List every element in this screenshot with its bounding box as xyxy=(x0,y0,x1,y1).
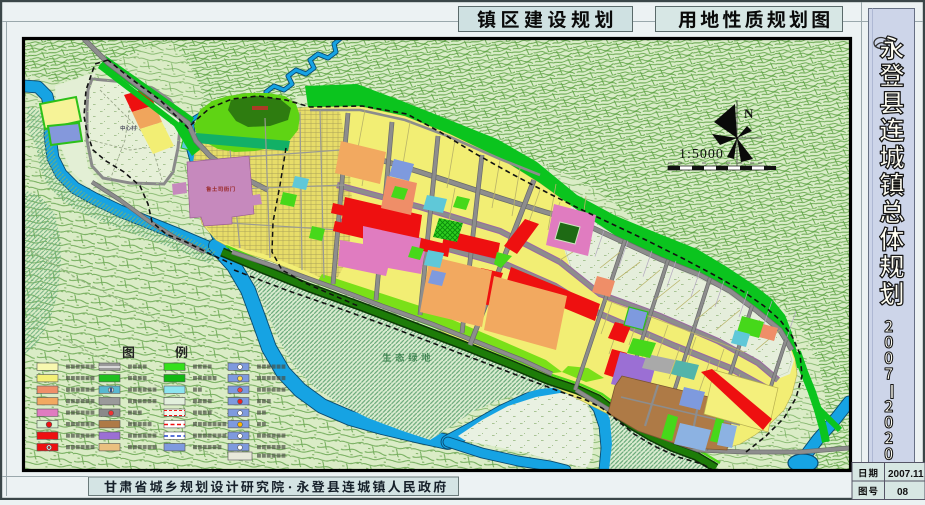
svg-text:N: N xyxy=(744,106,754,121)
svg-text:08: 08 xyxy=(897,487,909,498)
svg-text:2007.11: 2007.11 xyxy=(888,469,924,480)
svg-text:1:5000: 1:5000 xyxy=(679,147,724,162)
